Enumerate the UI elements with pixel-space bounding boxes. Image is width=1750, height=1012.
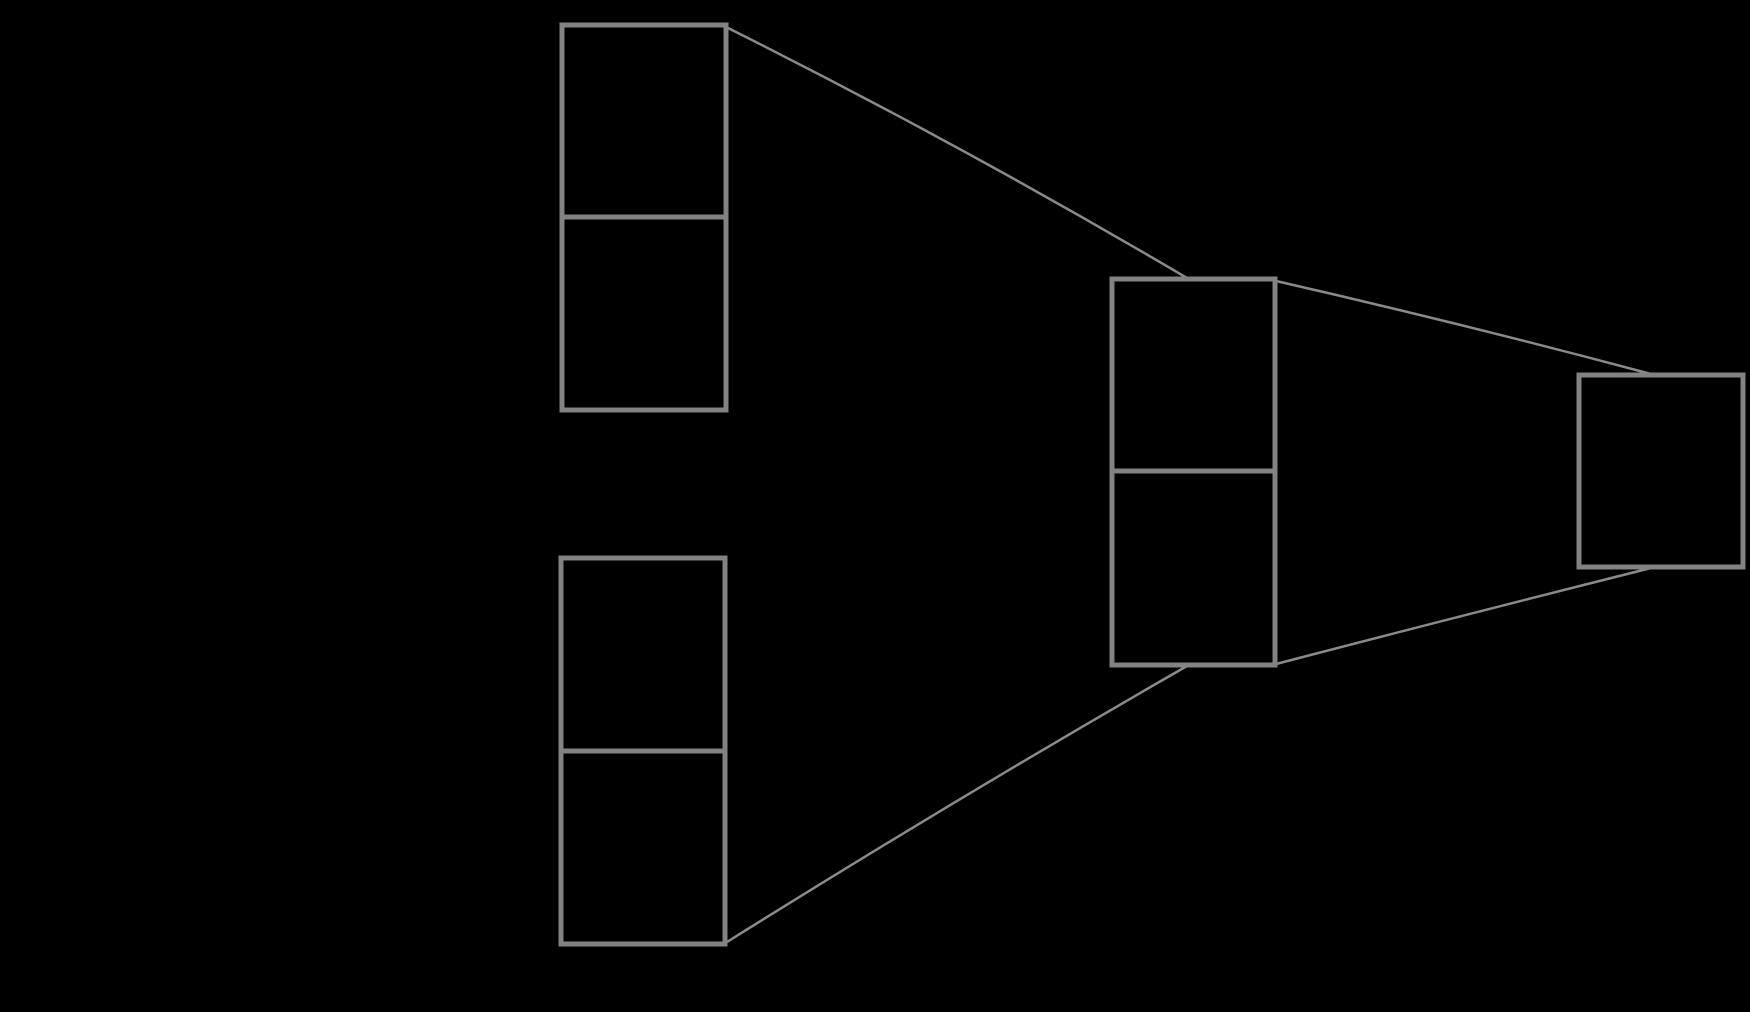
edge-bottomleft-node-to-middle-node: [727, 666, 1187, 942]
graph-diagram: [0, 0, 1750, 1012]
record-node-right: [1579, 375, 1743, 567]
record-node-middle: [1112, 279, 1275, 665]
edge-topleft-node-to-middle-node: [728, 28, 1187, 278]
record-node-right-outline: [1579, 375, 1743, 567]
edge-middle-node-to-right-node-upper: [1276, 281, 1651, 374]
record-node-top-left: [562, 25, 726, 410]
edge-middle-node-to-right-node-lower: [1276, 568, 1651, 664]
record-node-bottom-left: [561, 558, 725, 944]
diagram-svg: [0, 0, 1750, 1012]
